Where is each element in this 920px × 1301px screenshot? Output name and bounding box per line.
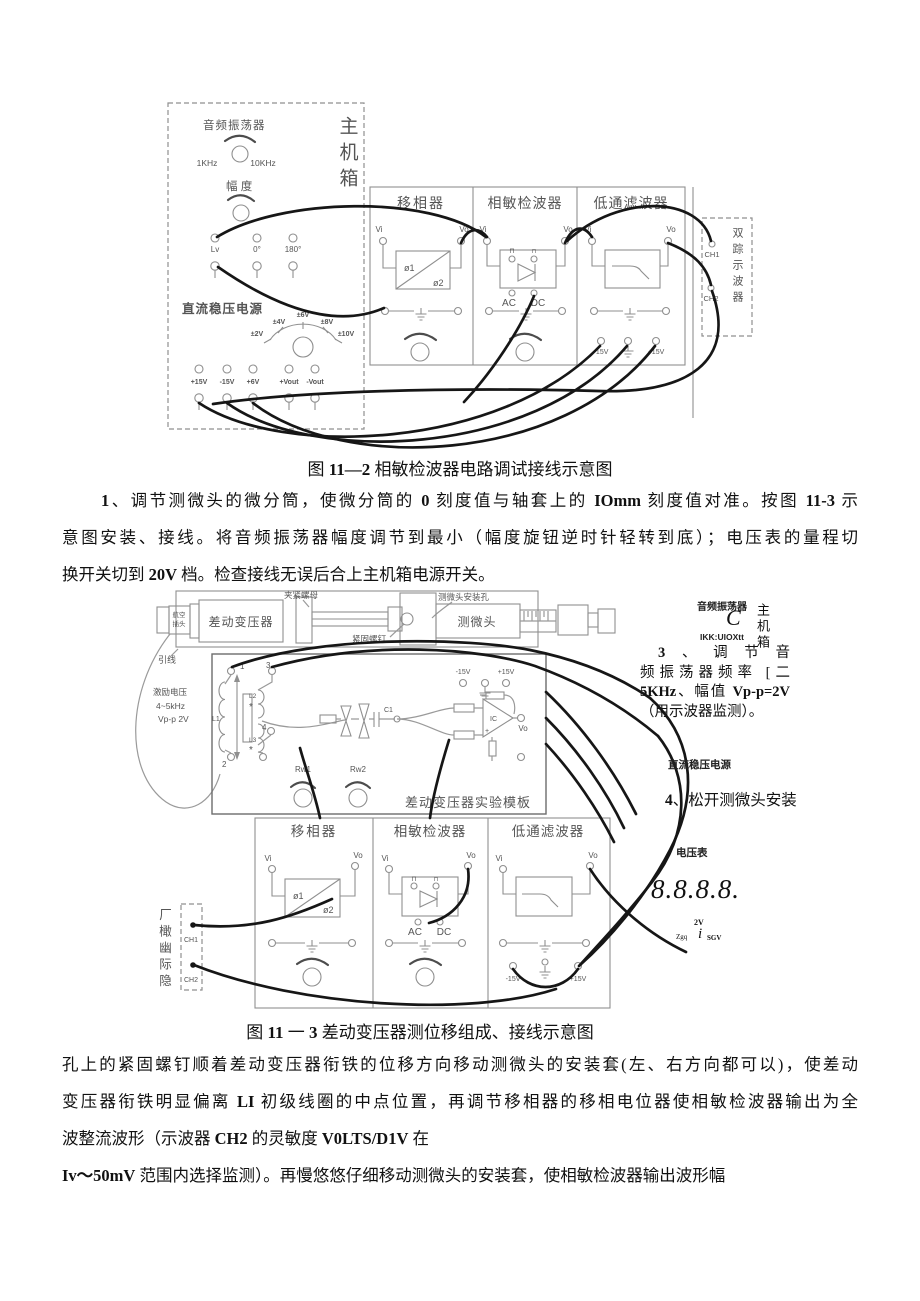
terminal-4-label: 4: [262, 723, 267, 732]
oscilloscope-label: 双踪示波器: [731, 227, 744, 307]
fasten-screw: [401, 613, 413, 625]
l1-label: L1: [212, 716, 220, 723]
capacitor-icon: [374, 712, 379, 727]
text-line: 变压器衔铁明显偏离 LI 初级线圈的中点位置，再调节移相器的移相电位器使相敏检波…: [62, 1083, 858, 1120]
pulse-icon: ⊓: [411, 876, 416, 883]
paragraph-bottom: 孔上的紧固螺钉顺着差动变压器衔铁的位移方向移动测微头的安装套(左、右方向都可以)…: [62, 1046, 858, 1194]
sidebar-voltmeter-label: 电压表: [676, 845, 708, 860]
clamp-nut: [296, 597, 312, 643]
aux-terminal: [518, 754, 525, 761]
transformer-label: 差动变压器: [208, 614, 273, 629]
vi-terminal: [500, 866, 507, 873]
terminal-180deg: [289, 234, 297, 242]
gnd-terminal: [455, 308, 462, 315]
lowpass-symbol: [516, 877, 572, 916]
aviation-plug-label: 插头: [173, 619, 187, 628]
pulse-icon: ⊓: [532, 249, 537, 255]
detector-title: 相敏检波器: [488, 195, 563, 211]
mount-hole-label: 测微头安装孔: [438, 592, 490, 602]
ch1-label: CH1: [184, 937, 198, 944]
paragraph-step1: 1、调节测微头的微分筒，使微分筒的 0 刻度值与轴套上的 IOmm 刻度值对准。…: [62, 482, 858, 593]
micro-head-label: 测微头: [457, 615, 496, 629]
gnd-terminal: [663, 308, 670, 315]
transformer-endcap: [190, 604, 199, 638]
module-leads: [487, 244, 565, 266]
vo-label: Vo: [518, 724, 528, 733]
gnd-terminal: [459, 940, 466, 947]
input-resistor: [454, 731, 474, 739]
board-label: 差动变压器实验模板: [405, 795, 531, 810]
aviation-plug-body: [169, 606, 190, 634]
ch1-label: CH1: [704, 250, 719, 259]
board-m15v-terminal: [460, 680, 467, 687]
gnd-terminal: [583, 940, 590, 947]
detector-title: 相敏检波器: [394, 824, 467, 839]
pot-icon: [341, 706, 351, 721]
lowpass-curve: [522, 894, 558, 907]
gnd-terminal: [486, 308, 493, 315]
dial-2v-label: ±2V: [251, 331, 264, 338]
text-line: 波整流波形（示波器 CH2 的灵敏度 V0LTS/D1V 在: [62, 1120, 858, 1157]
terminal-m15v: [223, 365, 231, 373]
diode-icon: [420, 891, 437, 907]
p6v-label: +6V: [247, 379, 260, 386]
sidebar-dc-supply-label: 直流稳压电源: [668, 757, 731, 772]
amplitude-label: 幅 度: [226, 179, 253, 193]
l2-label: L2: [249, 693, 257, 700]
module-knob: [510, 334, 541, 361]
amplitude-arc: [228, 195, 254, 201]
gnd-terminal: [500, 940, 507, 947]
vi-terminal: [386, 866, 393, 873]
diode-icon: [518, 264, 535, 281]
coil-terminal: [260, 754, 267, 761]
ac-terminal: [415, 919, 421, 925]
terminal-lv-label: Lv: [211, 245, 219, 254]
terminal-3-label: 3: [266, 661, 271, 670]
gnd-terminal: [349, 940, 356, 947]
phi1-label: ø1: [404, 263, 415, 273]
pot-icon: [359, 721, 369, 738]
module-leads: [592, 244, 668, 266]
star-mark: *: [249, 745, 253, 756]
rw1-label: Rw1: [295, 765, 312, 774]
terminal-p6v: [249, 365, 257, 373]
aviation-plug: [157, 607, 169, 633]
ic-label: IC: [490, 716, 497, 723]
rw2-arc: [346, 782, 370, 788]
voltage-dial-knob: [293, 337, 313, 357]
sidebar-oscillator-c: C: [726, 605, 741, 631]
chassis-label: 主机箱: [337, 116, 359, 194]
arrow-up: [234, 674, 240, 682]
vi-terminal: [269, 866, 276, 873]
paragraph-step4: 4、松开测微头安装: [665, 788, 797, 810]
pot-icon: [359, 704, 369, 721]
plug-terminal: [211, 262, 219, 278]
ground-icon: [625, 308, 636, 320]
excitation-vpp: Vp-p 2V: [158, 714, 189, 724]
ac-label: AC: [408, 927, 422, 938]
gnd-terminal: [542, 959, 548, 965]
pulse-icon: ⊓: [509, 248, 514, 255]
ground-icon: [416, 308, 427, 320]
vi-terminal: [484, 238, 491, 245]
freq-1khz-label: 1KHz: [197, 158, 218, 168]
voltmeter-display: 8.8.8.8.: [651, 874, 740, 905]
figure-11-3-caption: 图 11 一 3 差动变压器测位移组成、接线示意图: [30, 1018, 810, 1043]
voltmeter-range-mark: 2V Zgq i SGV: [672, 916, 732, 948]
module-leads: [389, 869, 468, 894]
ac-terminal: [509, 290, 515, 296]
experiment-board: [212, 654, 546, 814]
vi-label: Vi: [265, 854, 272, 863]
lead-label: 引线: [158, 654, 176, 665]
vo-terminal: [352, 863, 359, 870]
text-line: Iv～50mV 范围内选择监测）。再慢悠悠仔细移动测微头的安装套，使相敏检波器输…: [62, 1157, 858, 1194]
dc-supply-label: 直流稳压电源: [182, 301, 263, 316]
p15v-label: +15V: [191, 379, 208, 386]
amplitude-knob: [233, 205, 249, 221]
vo-terminal: [518, 715, 525, 722]
coil-link: [225, 675, 231, 753]
phi2-label: ø2: [433, 278, 444, 288]
ch2-label: CH2: [184, 977, 198, 984]
terminal-180deg-label: 180°: [285, 245, 302, 254]
micrometer-ratchet: [598, 609, 615, 633]
vo-label: Vo: [666, 225, 676, 234]
ac-label: AC: [502, 298, 516, 309]
coil-l2: [258, 690, 264, 718]
figure-11-2-caption: 图 11—2 相敏检波器电路调试接线示意图: [0, 455, 920, 480]
text-line: 孔上的紧固螺钉顺着差动变压器衔铁的位移方向移动测微头的安装套(左、右方向都可以)…: [62, 1046, 858, 1083]
vo-label: Vo: [353, 851, 363, 860]
vi-label: Vi: [376, 225, 383, 234]
terminal-p15v: [195, 365, 203, 373]
load-resistor: [489, 741, 496, 756]
ground-icon: [540, 966, 551, 978]
dial-6v-label: ±6V: [297, 312, 310, 319]
board-p15v-label: +15V: [498, 669, 515, 676]
input-resistor: [454, 704, 474, 712]
phi1-label: ø1: [293, 891, 304, 901]
detector-terminal: [531, 256, 537, 262]
module-leads: [383, 244, 461, 268]
board-gnd-terminal: [482, 680, 489, 687]
gnd-terminal: [625, 338, 632, 345]
terminal-4: [268, 728, 275, 735]
text-line: 1、调节测微头的微分筒，使微分筒的 0 刻度值与轴套上的 IOmm 刻度值对准。…: [62, 482, 858, 519]
excitation-label: 激励电压: [153, 687, 188, 697]
dial-4v-label: ±4V: [273, 319, 286, 326]
phase-shifter-title: 移相器: [291, 824, 338, 839]
plug-terminal: [253, 262, 261, 278]
ground-icon: [420, 940, 431, 952]
rw2-knob: [349, 789, 367, 807]
gnd-terminal: [591, 308, 598, 315]
coil-link: [258, 675, 272, 690]
pvout-label: +Vout: [279, 379, 299, 386]
figure-11-2-diagram: 主机箱 音频振荡器 1KHz 10KHz 幅 度 Lv 0° 180° 直流稳压…: [0, 85, 920, 460]
paragraph-step3: 3、调节音 频振荡器频率 [二 5KHz、幅值 Vp-p=2V （用示波器监测）…: [640, 644, 790, 722]
aviation-plug-label: 航空: [173, 610, 187, 619]
gnd-terminal: [559, 308, 566, 315]
freq-10khz-label: 10KHz: [250, 158, 276, 168]
rw2-label: Rw2: [350, 765, 367, 774]
gnd-terminal: [269, 940, 276, 947]
module-knob: [297, 959, 328, 986]
micrometer-stem: [588, 613, 598, 627]
mount-bracket: [400, 593, 436, 645]
pulse-icon: ⊓: [434, 877, 439, 883]
ground-icon: [480, 687, 491, 699]
leader-line: [303, 600, 309, 607]
range-i: i: [698, 926, 702, 943]
dc-label: DC: [437, 927, 451, 938]
p15v-terminal: [653, 338, 660, 345]
text-line: 5KHz、幅值 Vp-p=2V: [640, 683, 790, 703]
lowpass-curve: [612, 266, 649, 279]
range-zgq: Zgq: [676, 933, 687, 941]
lowpass-title: 低通滤波器: [512, 824, 585, 839]
vi-label: Vi: [496, 854, 503, 863]
l3-label: L3: [249, 737, 257, 744]
board-m15v-label: -15V: [456, 669, 471, 676]
m15v-terminal: [598, 338, 605, 345]
module-knob: [405, 334, 436, 361]
text-line: 意图安装、接线。将音频振荡器幅度调节到最小（幅度旋钮逆时针轻转到底）；电压表的量…: [62, 519, 858, 556]
pot-icon: [341, 721, 351, 736]
coil-l1: [219, 682, 225, 752]
detector-terminal: [433, 883, 439, 889]
vi-label: Vi: [382, 854, 389, 863]
wires: [199, 206, 719, 447]
ground-icon: [540, 940, 551, 952]
plug-terminal: [311, 394, 319, 410]
terminal-2: [228, 754, 235, 761]
plus-sign: +: [485, 728, 489, 735]
text-line: （用示波器监测）。: [640, 703, 790, 723]
vi-terminal: [589, 238, 596, 245]
micrometer-thimble: [558, 605, 588, 635]
dial-8v-label: ±8V: [321, 319, 334, 326]
gnd-terminal: [386, 940, 393, 947]
clamp-nut-label: 夹紧螺母: [284, 590, 318, 600]
junction-wire: [262, 720, 345, 727]
sidebar-oscillator-range: IKK:UIOXtt: [700, 632, 744, 642]
terminal-1: [228, 668, 235, 675]
document-page: { "colors": {"pos": "#c03030", "neg": "#…: [0, 0, 920, 1301]
m15v-label: -15V: [220, 379, 235, 386]
rw1-knob: [294, 789, 312, 807]
mvout-label: -Vout: [306, 379, 324, 386]
modules-frame: [255, 818, 610, 1008]
vi-terminal: [380, 238, 387, 245]
text-line: 3、调节音: [640, 644, 790, 664]
terminal-0deg: [253, 234, 261, 242]
lowpass-symbol: [605, 250, 660, 288]
module-knob: [410, 959, 441, 986]
text-line: 频振荡器频率 [二: [640, 664, 790, 684]
oscillator-arc: [225, 136, 255, 142]
vo-label: Vo: [466, 851, 476, 860]
dial-10v-label: ±10V: [338, 331, 355, 338]
audio-oscillator-label: 音频振荡器: [203, 118, 266, 132]
vo-label: Vo: [588, 851, 598, 860]
range-sgv: SGV: [707, 934, 721, 942]
phi2-label: ø2: [323, 905, 334, 915]
oscillator-knob: [232, 146, 248, 162]
c1-label: C1: [384, 707, 393, 714]
terminal-mvout: [311, 365, 319, 373]
plug-terminal: [289, 262, 297, 278]
ground-icon: [307, 940, 318, 952]
excitation-freq: 4~5kHz: [156, 701, 185, 711]
detector-terminal: [509, 256, 515, 262]
terminal-pvout: [285, 365, 293, 373]
board-p15v-terminal: [503, 680, 510, 687]
oscilloscope-label: 厂橄幽际隐: [157, 908, 171, 991]
star-mark: *: [249, 702, 253, 713]
terminal-0deg-label: 0°: [253, 245, 261, 254]
detector-terminal: [411, 883, 417, 889]
terminal-2-label: 2: [222, 760, 227, 769]
